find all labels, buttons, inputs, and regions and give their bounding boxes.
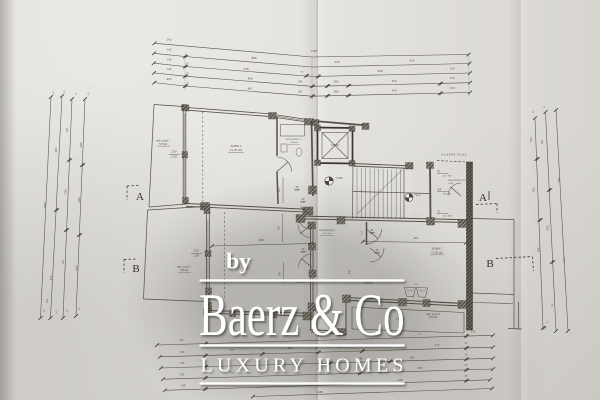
svg-text:159: 159 [180, 373, 185, 377]
svg-text:3,92 m2: 3,92 m2 [323, 232, 332, 235]
svg-text:SMJESTENJE ULAZ: SMJESTENJE ULAZ [448, 179, 467, 182]
svg-text:1587: 1587 [311, 49, 318, 53]
svg-text:B: B [486, 258, 493, 270]
svg-text:7,88 m2: 7,88 m2 [180, 269, 189, 272]
svg-text:554: 554 [410, 59, 415, 63]
svg-text:280: 280 [334, 80, 339, 84]
svg-text:167: 167 [278, 187, 281, 192]
svg-text:A: A [136, 191, 144, 203]
svg-text:3,88 m2: 3,88 m2 [331, 144, 340, 147]
svg-text:985: 985 [43, 202, 47, 207]
svg-text:142: 142 [167, 58, 172, 62]
svg-text:150: 150 [471, 329, 476, 333]
svg-text:250: 250 [172, 150, 177, 154]
svg-text:B: B [132, 263, 139, 275]
svg-text:498: 498 [259, 238, 264, 242]
svg-text:130: 130 [278, 225, 281, 230]
svg-text:250: 250 [194, 249, 199, 253]
svg-text:626: 626 [398, 378, 403, 382]
svg-text:280: 280 [334, 89, 339, 93]
svg-text:+4,12: +4,12 [414, 194, 421, 197]
svg-text:1486: 1486 [317, 390, 324, 394]
svg-text:A 90/2: A 90/2 [448, 182, 453, 185]
svg-text:538: 538 [244, 67, 249, 71]
svg-text:500: 500 [79, 142, 83, 147]
svg-text:225: 225 [335, 60, 340, 64]
svg-text:575: 575 [230, 348, 235, 352]
svg-text:159: 159 [181, 384, 186, 388]
svg-text:180: 180 [410, 355, 415, 359]
svg-text:7,88 m2: 7,88 m2 [159, 143, 168, 146]
svg-text:142: 142 [167, 67, 172, 71]
svg-text:225+190: 225+190 [443, 216, 452, 218]
svg-text:354: 354 [392, 89, 397, 93]
svg-text:150: 150 [450, 76, 455, 80]
svg-text:406: 406 [248, 77, 253, 81]
svg-text:100: 100 [66, 127, 69, 132]
svg-text:Baerz & Co: Baerz & Co [199, 282, 405, 348]
svg-text:102: 102 [62, 259, 65, 264]
svg-text:250: 250 [64, 189, 68, 194]
svg-text:A: A [479, 192, 487, 204]
svg-text:198: 198 [298, 81, 303, 84]
svg-text:159: 159 [180, 350, 185, 354]
svg-text:150: 150 [450, 86, 455, 90]
svg-text:450: 450 [75, 265, 79, 270]
svg-text:491: 491 [414, 236, 419, 240]
svg-text:3,60 m2: 3,60 m2 [429, 316, 438, 319]
svg-text:by: by [226, 249, 251, 275]
svg-text:225+190: 225+190 [443, 176, 452, 178]
svg-text:119: 119 [46, 298, 49, 303]
svg-text:159: 159 [179, 338, 184, 342]
svg-text:142: 142 [167, 48, 172, 52]
svg-text:100: 100 [298, 91, 303, 94]
svg-text:GLAVNI ULAZ: GLAVNI ULAZ [441, 153, 467, 157]
svg-text:374: 374 [435, 343, 440, 347]
svg-text:401: 401 [248, 86, 253, 90]
svg-text:403: 403 [167, 77, 172, 81]
svg-text:628: 628 [378, 69, 383, 73]
svg-text:470: 470 [49, 275, 53, 280]
svg-text:142: 142 [167, 38, 172, 42]
svg-text:150: 150 [450, 66, 455, 70]
svg-text:354: 354 [392, 79, 397, 83]
svg-text:866: 866 [252, 56, 257, 60]
svg-text:741: 741 [349, 269, 352, 274]
svg-text:495: 495 [54, 147, 58, 152]
svg-text:290: 290 [77, 197, 81, 202]
svg-text:220+100: 220+100 [443, 194, 452, 196]
svg-text:100: 100 [437, 189, 442, 192]
svg-text:5,80 m2: 5,80 m2 [290, 141, 299, 144]
svg-text:2,20: 2,20 [375, 252, 380, 255]
svg-text:159: 159 [180, 361, 185, 365]
svg-text:393: 393 [418, 366, 423, 370]
